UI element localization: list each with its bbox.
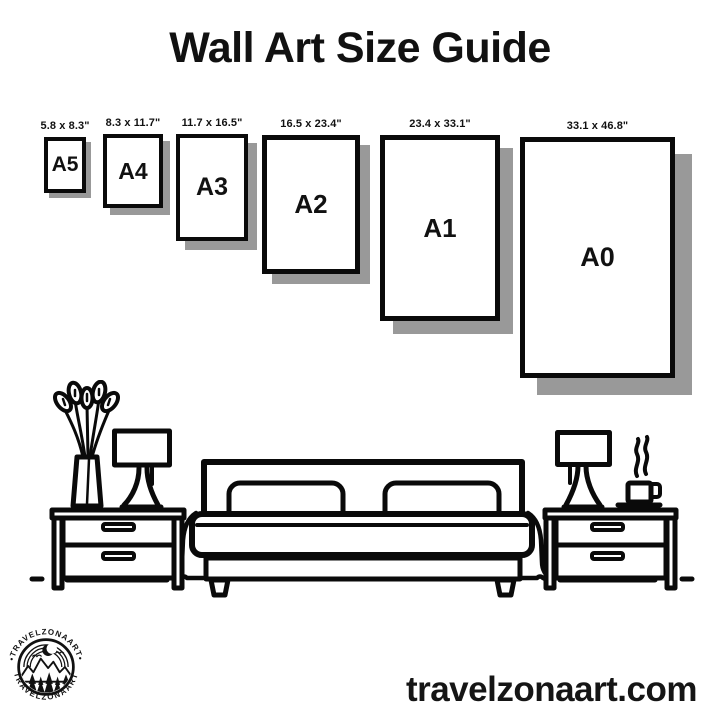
size-letter-a0: A0 (580, 242, 615, 273)
wall-art-size-guide-poster: Wall Art Size Guide 5.8 x 8.3" A5 8.3 x … (0, 0, 720, 720)
bed-illustration (174, 462, 550, 595)
size-frame-a0: 33.1 x 46.8" A0 (520, 137, 675, 378)
size-dims-a1: 23.4 x 33.1" (409, 118, 470, 130)
bedroom-illustration (0, 380, 720, 605)
mattress (192, 514, 532, 555)
size-dims-a0: 33.1 x 46.8" (567, 120, 628, 132)
size-letter-a4: A4 (118, 158, 147, 185)
size-letter-a3: A3 (196, 173, 228, 202)
size-sheet-a4: A4 (103, 134, 163, 208)
website-url: travelzonaart.com (406, 670, 697, 710)
size-dims-a2: 16.5 x 23.4" (280, 118, 341, 130)
steam-icon (645, 437, 648, 474)
nightstand-right-illustration (545, 510, 676, 588)
size-frame-a1: 23.4 x 33.1" A1 (380, 135, 500, 321)
coffee-cup-illustration (618, 437, 660, 505)
page-title: Wall Art Size Guide (0, 24, 720, 73)
vase-plant-illustration (52, 380, 121, 506)
size-sheet-a5: A5 (44, 137, 86, 193)
size-letter-a1: A1 (423, 213, 456, 244)
bed-leg-left (211, 580, 228, 595)
size-dims-a3: 11.7 x 16.5" (182, 117, 243, 129)
nightstand-right-leg (546, 518, 554, 588)
size-sheet-a0: A0 (520, 137, 675, 378)
table-lamp-left-illustration (115, 431, 170, 507)
size-dims-a4: 8.3 x 11.7" (106, 117, 161, 129)
nightstand-left-illustration (52, 510, 184, 588)
bed-base (206, 558, 520, 579)
size-letter-a2: A2 (294, 189, 327, 220)
size-sheet-a2: A2 (262, 135, 360, 274)
size-frame-a4: 8.3 x 11.7" A4 (103, 134, 163, 208)
bed-leg-right (497, 580, 514, 595)
brand-logo: •TRAVELZONAART• TRAVELZONAART (6, 627, 86, 707)
size-frame-a3: 11.7 x 16.5" A3 (176, 134, 248, 241)
size-frame-a2: 16.5 x 23.4" A2 (262, 135, 360, 274)
size-letter-a5: A5 (52, 153, 79, 177)
size-sheet-a3: A3 (176, 134, 248, 241)
size-sheet-a1: A1 (380, 135, 500, 321)
size-frame-a5: 5.8 x 8.3" A5 (44, 137, 86, 193)
table-lamp-right-illustration (558, 433, 610, 508)
steam-icon (636, 439, 639, 476)
size-dims-a5: 5.8 x 8.3" (40, 120, 89, 132)
